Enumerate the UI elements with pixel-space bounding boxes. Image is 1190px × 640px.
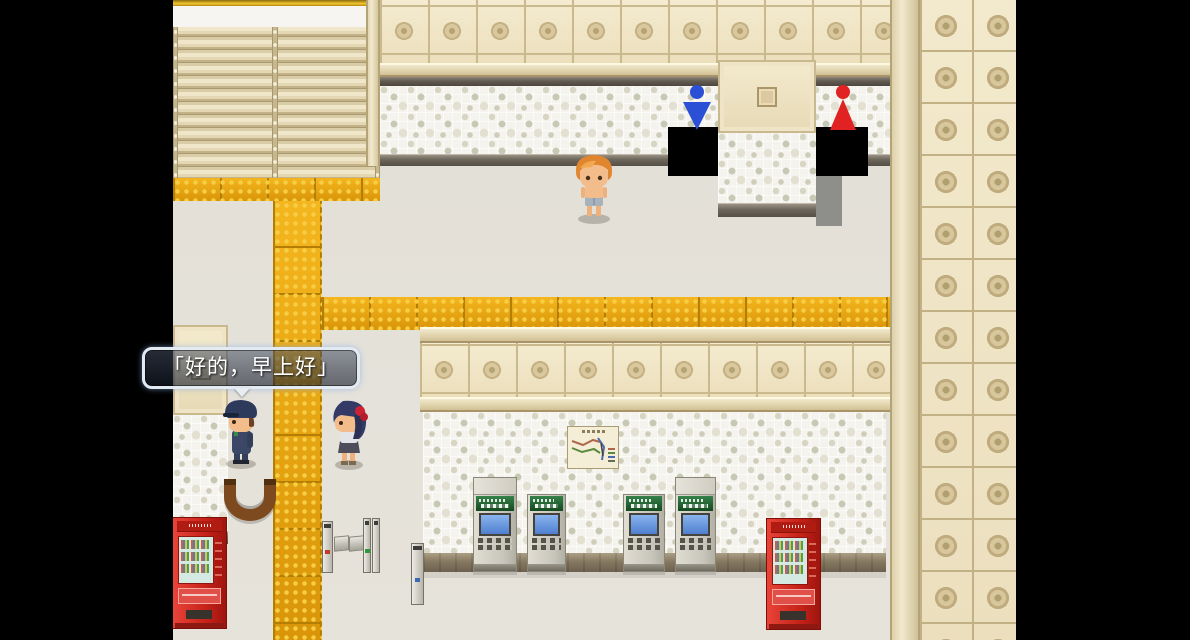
tactile-paving-column — [273, 201, 322, 640]
ticket-machine-sign — [678, 496, 713, 511]
girl-character[interactable] — [329, 399, 369, 471]
vending-machine-coin-panel — [215, 542, 222, 576]
vending-machine-right[interactable] — [766, 518, 821, 630]
ticket-machine-buttons — [628, 538, 660, 543]
ticket-wall-medallions — [420, 343, 890, 397]
ticket-machine-base — [624, 564, 664, 571]
restroom-divider-wall — [718, 133, 816, 203]
station-attendant-character[interactable] — [221, 398, 263, 470]
ticket-machine-3[interactable] — [623, 494, 665, 572]
ticket-machine-screen — [681, 513, 710, 536]
player-character[interactable] — [572, 152, 616, 226]
ticket-machine-buttons — [680, 538, 711, 543]
ticket-gate-post[interactable] — [372, 518, 380, 573]
ticket-machine-2[interactable] — [527, 494, 566, 572]
vending-machine-left[interactable] — [172, 517, 227, 629]
vending-machine-header — [771, 522, 816, 533]
restroom-divider-trim — [718, 203, 816, 217]
ticket-machine-buttons — [532, 538, 561, 543]
right-wall-tiles — [920, 0, 1016, 640]
letterbox-right — [1016, 0, 1190, 640]
womens-restroom-doorway[interactable] — [816, 127, 868, 176]
ticket-machine-sign — [626, 496, 662, 511]
ticket-machine-slots — [532, 545, 561, 550]
tactile-paving-stairs-row — [173, 178, 380, 201]
ticket-machine-slots — [628, 545, 660, 550]
dialogue-bubble[interactable]: 「好的，早上好」 — [142, 347, 360, 389]
ticket-machine-base — [676, 564, 715, 571]
route-map-poster[interactable] — [567, 426, 619, 469]
ticket-wall-frame-top — [420, 327, 890, 343]
ticket-machine-screen — [533, 513, 560, 536]
ticket-gate-post[interactable] — [363, 518, 371, 573]
womens-doorway-shadow — [816, 176, 842, 226]
ticket-machine-slots — [680, 545, 711, 550]
ticket-machine-cabinet — [676, 478, 715, 495]
vending-machine-display — [178, 536, 214, 584]
landing-gold-strip — [173, 0, 380, 6]
ticket-machine-sign — [476, 496, 514, 511]
ticket-gate-flap — [334, 535, 349, 552]
ticket-machine-base — [528, 564, 565, 571]
corridor-corner-frame — [366, 0, 380, 166]
ticket-machine-screen — [629, 513, 659, 536]
mens-restroom-doorway[interactable] — [668, 127, 718, 176]
ticket-machine-screen — [479, 513, 511, 536]
ticket-machine-1[interactable] — [473, 477, 517, 572]
ticket-machine-buttons — [478, 538, 512, 543]
ticket-machine-slots — [478, 545, 512, 550]
vending-machine-flap — [772, 589, 815, 605]
vending-machine-flap — [178, 588, 221, 604]
vending-machine-base — [175, 623, 224, 628]
ticket-machine-base — [474, 564, 516, 571]
vending-machine-display — [772, 537, 808, 585]
ticket-machine-cabinet — [474, 478, 516, 495]
ticket-wall-frame-bottom — [420, 397, 890, 412]
male-restroom-icon — [682, 84, 712, 132]
left-wall-mosaic — [173, 415, 228, 531]
right-wall-frame — [890, 0, 920, 640]
vending-machine-header — [177, 521, 222, 532]
stair-rail-center — [272, 27, 278, 178]
ticket-machine-sign — [530, 496, 563, 511]
ticket-gate-flap — [349, 535, 364, 552]
ticket-gate-post[interactable] — [411, 543, 424, 605]
stair-rail-left — [173, 27, 178, 178]
vending-machine-base — [769, 624, 818, 629]
dialogue-bubble-tail — [234, 388, 250, 397]
game-screen: 「好的，早上好」 — [0, 0, 1190, 640]
vending-machine-outlet — [780, 611, 806, 620]
vending-machine-coin-panel — [809, 543, 816, 577]
corridor-upper-wall — [380, 0, 890, 63]
restroom-pillar — [718, 60, 816, 133]
ticket-machine-4[interactable] — [675, 477, 716, 572]
letterbox-left — [0, 0, 173, 640]
ticket-gate-post[interactable] — [322, 521, 333, 573]
female-restroom-icon — [828, 84, 858, 132]
vending-machine-outlet — [186, 610, 212, 619]
tactile-paving-row — [322, 297, 890, 330]
